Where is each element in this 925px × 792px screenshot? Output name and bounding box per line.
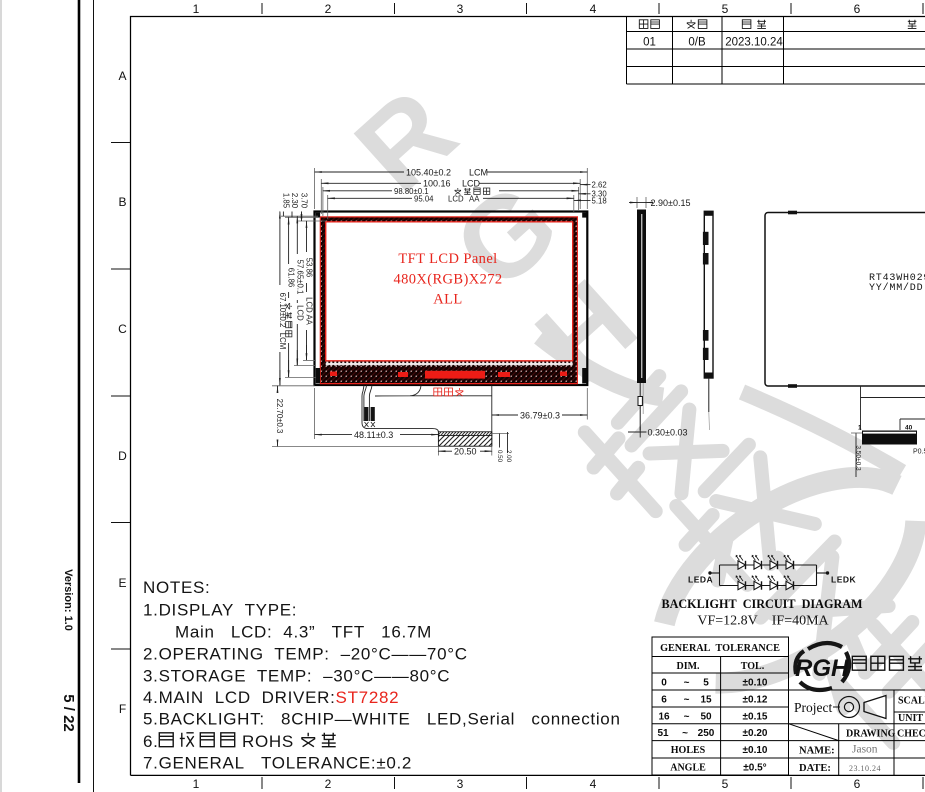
svg-text:DIM.: DIM. <box>676 661 700 672</box>
svg-text:SCALE: SCALE <box>898 696 925 707</box>
svg-text:2.90±0.15: 2.90±0.15 <box>651 198 691 208</box>
svg-text:LCD: LCD <box>448 195 464 204</box>
svg-text:Jason: Jason <box>852 744 878 756</box>
svg-text:5: 5 <box>703 678 709 689</box>
svg-text:6: 6 <box>854 777 861 791</box>
svg-text:NAME:: NAME: <box>799 746 835 757</box>
svg-text:RGH: RGH <box>795 655 849 682</box>
svg-text:57.65±0.1: 57.65±0.1 <box>295 260 304 295</box>
svg-text:NOTES:: NOTES: <box>143 578 211 597</box>
svg-text:TFT LCD Panel: TFT LCD Panel <box>398 251 497 267</box>
svg-text:2.62: 2.62 <box>592 180 607 189</box>
svg-text:TOL.: TOL. <box>741 661 765 672</box>
svg-text:2: 2 <box>325 2 332 16</box>
svg-text:±0.10: ±0.10 <box>743 745 768 756</box>
svg-text:Main LCD: 4.3” TFT 16.7: Main LCD: 4.3” TFT 16.7M <box>175 623 432 642</box>
svg-text:~: ~ <box>684 711 690 722</box>
svg-text:1.DISPLAY TYPE:: 1.DISPLAY TYPE: <box>143 601 297 620</box>
svg-text:2023.10.24: 2023.10.24 <box>725 37 783 49</box>
svg-text:LEDA: LEDA <box>688 575 713 585</box>
svg-text:0.30±0.03: 0.30±0.03 <box>648 428 688 438</box>
svg-text:3: 3 <box>457 2 464 16</box>
svg-text:0: 0 <box>661 678 667 689</box>
svg-text:~: ~ <box>684 695 690 706</box>
svg-text:0.50: 0.50 <box>496 450 503 463</box>
svg-text:2.00: 2.00 <box>505 450 512 463</box>
svg-text:4: 4 <box>590 2 597 16</box>
svg-text:2.OPERATING TEMP: –20°C——70°: 2.OPERATING TEMP: –20°C——70°C <box>143 645 468 664</box>
svg-text:±0.20: ±0.20 <box>743 728 768 739</box>
svg-text:GENERAL TOLERANCE: GENERAL TOLERANCE <box>660 643 780 654</box>
svg-text:~: ~ <box>682 728 688 739</box>
svg-text:3.70: 3.70 <box>300 193 309 209</box>
svg-text:36.79±0.3: 36.79±0.3 <box>520 410 560 420</box>
svg-text:5: 5 <box>722 777 729 791</box>
svg-text:250: 250 <box>698 728 715 739</box>
svg-text:5.18: 5.18 <box>592 196 607 205</box>
svg-text:6.: 6. <box>143 732 159 751</box>
svg-text:Version: 1.0: Version: 1.0 <box>62 569 74 631</box>
svg-text:5: 5 <box>722 2 729 16</box>
svg-text:ANGLE: ANGLE <box>670 762 706 773</box>
svg-text:48.11±0.3: 48.11±0.3 <box>354 430 393 440</box>
svg-text:Project: Project <box>794 700 832 715</box>
svg-text:DRAWING: DRAWING <box>846 729 896 740</box>
svg-text:3.STORAGE TEMP: –30°C——80°C: 3.STORAGE TEMP: –30°C——80°C <box>143 667 450 686</box>
svg-text:ROHS: ROHS <box>242 732 294 751</box>
svg-text:YY/MM/DD V: YY/MM/DD V <box>869 282 925 294</box>
svg-text:2: 2 <box>325 777 332 791</box>
svg-text:±0.5°: ±0.5° <box>743 762 766 773</box>
svg-text:AA: AA <box>469 195 480 204</box>
svg-text:±0.12: ±0.12 <box>743 695 768 706</box>
svg-text:480X(RGB)X272: 480X(RGB)X272 <box>393 272 502 288</box>
svg-text:1: 1 <box>193 777 200 791</box>
svg-text:20.50: 20.50 <box>454 447 477 457</box>
svg-text:LCM: LCM <box>278 333 287 349</box>
svg-text:A: A <box>118 69 126 83</box>
svg-text:ALL: ALL <box>433 292 462 308</box>
svg-text:±0.15: ±0.15 <box>743 711 768 722</box>
svg-text:105.40±0.2: 105.40±0.2 <box>406 168 451 178</box>
svg-text:67.10±0.2: 67.10±0.2 <box>278 293 287 328</box>
svg-text:3: 3 <box>457 777 464 791</box>
svg-text:±0.10: ±0.10 <box>743 678 768 689</box>
svg-text:3.50±0.3: 3.50±0.3 <box>855 445 862 471</box>
svg-text:40: 40 <box>905 425 913 432</box>
svg-text:61.86: 61.86 <box>287 268 296 288</box>
svg-text:01: 01 <box>643 37 656 49</box>
svg-text:5 / 22: 5 / 22 <box>60 694 77 732</box>
svg-text:1: 1 <box>858 425 862 432</box>
svg-text:4.MAIN LCD DRIVER:ST7282: 4.MAIN LCD DRIVER:ST7282 <box>143 688 399 707</box>
svg-text:53.86: 53.86 <box>305 258 314 278</box>
svg-text:E: E <box>118 576 126 590</box>
svg-text:6: 6 <box>854 2 861 16</box>
svg-text:LCD: LCD <box>295 305 304 321</box>
svg-text:~: ~ <box>684 678 690 689</box>
svg-text:B: B <box>118 195 126 209</box>
svg-text:7.GENERAL TOLERANCE:±0.2: 7.GENERAL TOLERANCE:±0.2 <box>143 754 412 773</box>
svg-text:16: 16 <box>658 711 670 722</box>
svg-text:CHECK: CHECK <box>897 729 925 740</box>
svg-text:5.BACKLIGHT: 8CHIP—WHITE L: 5.BACKLIGHT: 8CHIP—WHITE LED,Serial conn… <box>143 710 621 729</box>
svg-text:P0.5: P0.5 <box>913 449 925 456</box>
svg-text:LCD: LCD <box>462 179 481 189</box>
svg-text:D: D <box>118 449 127 463</box>
svg-text:50: 50 <box>700 711 712 722</box>
svg-text:6: 6 <box>661 695 667 706</box>
svg-text:51: 51 <box>657 728 669 739</box>
svg-text:BACKLIGHT CIRCUIT DIAGRAM: BACKLIGHT CIRCUIT DIAGRAM <box>661 597 863 611</box>
svg-text:22.70±0.3: 22.70±0.3 <box>275 399 284 434</box>
svg-text:15: 15 <box>700 695 712 706</box>
svg-text:0/B: 0/B <box>688 37 706 49</box>
svg-text:LCD AA: LCD AA <box>305 297 314 326</box>
svg-text:VF=12.8V IF=40MA: VF=12.8V IF=40MA <box>697 614 829 629</box>
svg-text:1: 1 <box>193 2 200 16</box>
svg-text:4: 4 <box>590 777 597 791</box>
svg-text:95.04: 95.04 <box>414 195 434 204</box>
svg-text:UNIT: UNIT <box>898 713 923 724</box>
svg-text:C: C <box>118 322 127 336</box>
svg-text:HOLES: HOLES <box>671 745 706 756</box>
svg-text:23.10.24: 23.10.24 <box>849 764 881 773</box>
svg-text:F: F <box>119 702 126 716</box>
svg-text:LCM: LCM <box>469 168 488 178</box>
svg-text:DATE:: DATE: <box>799 763 831 774</box>
svg-text:LEDK: LEDK <box>831 575 857 585</box>
svg-text:1.85: 1.85 <box>281 193 290 209</box>
